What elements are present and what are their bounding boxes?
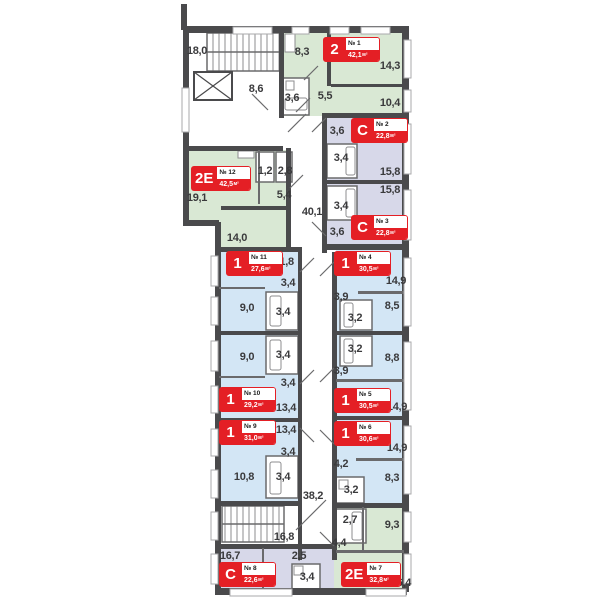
- room-area-label: 2,7: [343, 514, 357, 526]
- apartment-type-label: 2: [323, 37, 346, 62]
- floor-plan: 8,314,310,45,53,62№ 142,1м²3,63,415,8С№ …: [0, 0, 600, 600]
- room-area-label: 3,6: [330, 226, 344, 238]
- apartment-number: № 9: [242, 421, 275, 432]
- apartment-badge-2[interactable]: С№ 222,8м²: [351, 118, 408, 143]
- apartment-badge-4[interactable]: 1№ 430,5м²: [334, 251, 391, 276]
- apartment-badge-info: № 142,1м²: [346, 37, 380, 62]
- apartment-badge-10[interactable]: 1№ 1029,2м²: [219, 387, 276, 412]
- room-area-label: 3,4: [281, 277, 295, 289]
- room-area-label: 3,4: [276, 471, 290, 483]
- apartment-area: 30,5м²: [357, 263, 390, 275]
- apartment-type-label: 1: [334, 388, 357, 413]
- apartment-badge-info: № 1242,5м²: [217, 166, 251, 191]
- area-unit: м²: [390, 133, 395, 139]
- apartment-number: № 7: [367, 563, 400, 574]
- apartment-badge-info: № 630,6м²: [357, 421, 391, 446]
- apartment-type-label: С: [219, 562, 242, 587]
- apartment-number: № 10: [242, 388, 275, 399]
- apartment-type-label: С: [351, 118, 374, 143]
- apartment-badge-info: № 222,8м²: [374, 118, 408, 143]
- room-area-label: 1,2: [258, 165, 272, 177]
- room-area-label: 3,4: [300, 571, 314, 583]
- room-area-label: 2,8: [278, 165, 292, 177]
- apartment-badge-9[interactable]: 1№ 931,0м²: [219, 420, 276, 445]
- room-area-label: 3,2: [344, 484, 358, 496]
- area-unit: м²: [258, 435, 263, 441]
- apartment-type-label: 1: [226, 251, 249, 276]
- apartment-badge-7[interactable]: 2Е№ 732,8м²: [341, 562, 401, 587]
- apartment-type-label: 1: [334, 421, 357, 446]
- apartment-number: № 8: [242, 563, 275, 574]
- room-area-label: 13,4: [276, 424, 296, 436]
- area-unit: м²: [373, 403, 378, 409]
- room-area-label: 14,3: [380, 60, 400, 72]
- apartment-area: 22,6м²: [242, 574, 275, 586]
- room-area-label: 5,5: [318, 90, 332, 102]
- area-unit: м²: [258, 402, 263, 408]
- apartment-type-label: 1: [219, 420, 242, 445]
- apartment-badge-info: № 1127,6м²: [249, 251, 283, 276]
- room-area-label: 8,3: [385, 472, 399, 484]
- apartment-badge-3[interactable]: С№ 322,8м²: [351, 215, 408, 240]
- common-area-label-corridor-lower: 38,2: [303, 490, 323, 502]
- apartment-number: № 11: [249, 252, 282, 263]
- room-area-label: 2,5: [292, 550, 306, 562]
- common-area-label-stairs-bottom: 16,8: [274, 531, 294, 543]
- room-area-label: 16,7: [220, 550, 240, 562]
- room-area-label: 10,8: [234, 471, 254, 483]
- apartment-type-label: С: [351, 215, 374, 240]
- room-area-label: 9,3: [385, 519, 399, 531]
- room-area-label: 3,2: [348, 312, 362, 324]
- room-area-label: 8,8: [385, 352, 399, 364]
- room-area-label: 3,4: [334, 152, 348, 164]
- area-unit: м²: [383, 577, 388, 583]
- room-area-label: 14,9: [386, 275, 406, 287]
- room-area-label: 9,0: [240, 351, 254, 363]
- apartment-number: № 2: [374, 119, 407, 130]
- room-area-label: 3,4: [281, 446, 295, 458]
- apartment-area: 30,6м²: [357, 433, 390, 445]
- room-area-label: 3,4: [281, 377, 295, 389]
- apartment-badge-info: № 732,8м²: [367, 562, 401, 587]
- apartment-badge-11[interactable]: 1№ 1127,6м²: [226, 251, 283, 276]
- apartment-number: № 4: [357, 252, 390, 263]
- apartment-area: 32,8м²: [367, 574, 400, 586]
- common-area-label-entrance-lobby: 8,6: [249, 83, 263, 95]
- apartment-type-label: 2Е: [191, 166, 217, 191]
- area-unit: м²: [390, 230, 395, 236]
- apartment-badge-info: № 530,5м²: [357, 388, 391, 413]
- apartment-type-label: 1: [334, 251, 357, 276]
- apartment-badge-8[interactable]: С№ 822,6м²: [219, 562, 276, 587]
- room-area-label: 3,2: [348, 343, 362, 355]
- apartment-number: № 3: [374, 216, 407, 227]
- common-area-label-stairs-top: 18,0: [187, 45, 207, 57]
- apartment-area: 29,2м²: [242, 399, 275, 411]
- room-area-label: 8,3: [295, 46, 309, 58]
- room-area-label: 8,5: [385, 300, 399, 312]
- room-area-label: 4,4: [332, 537, 346, 549]
- apartment-number: № 5: [357, 389, 390, 400]
- apartment-area: 22,8м²: [374, 130, 407, 142]
- apartment-badge-1[interactable]: 2№ 142,1м²: [323, 37, 380, 62]
- apartment-type-label: 2Е: [341, 562, 367, 587]
- common-area-label-corridor-upper: 40,1: [302, 206, 322, 218]
- area-unit: м²: [233, 181, 238, 187]
- apartment-badge-info: № 1029,2м²: [242, 387, 276, 412]
- room-area-label: 9,0: [240, 302, 254, 314]
- labels-layer: 8,314,310,45,53,62№ 142,1м²3,63,415,8С№ …: [0, 0, 600, 600]
- apartment-area: 30,5м²: [357, 400, 390, 412]
- room-area-label: 15,8: [380, 166, 400, 178]
- area-unit: м²: [258, 577, 263, 583]
- apartment-number: № 1: [346, 38, 379, 49]
- apartment-area: 42,5м²: [217, 178, 250, 190]
- apartment-badge-5[interactable]: 1№ 530,5м²: [334, 388, 391, 413]
- apartment-badge-info: № 430,5м²: [357, 251, 391, 276]
- room-area-label: 15,8: [380, 184, 400, 196]
- apartment-type-label: 1: [219, 387, 242, 412]
- apartment-badge-6[interactable]: 1№ 630,6м²: [334, 421, 391, 446]
- apartment-area: 31,0м²: [242, 432, 275, 444]
- apartment-number: № 12: [217, 167, 250, 178]
- room-area-label: 3,6: [330, 125, 344, 137]
- room-area-label: 5,4: [277, 189, 291, 201]
- room-area-label: 3,9: [334, 291, 348, 303]
- room-area-label: 3,6: [285, 92, 299, 104]
- room-area-label: 10,4: [380, 97, 400, 109]
- room-area-label: 19,1: [187, 192, 207, 204]
- apartment-badge-12[interactable]: 2Е№ 1242,5м²: [191, 166, 251, 191]
- room-area-label: 13,4: [276, 402, 296, 414]
- apartment-area: 27,6м²: [249, 263, 282, 275]
- apartment-number: № 6: [357, 422, 390, 433]
- room-area-label: 3,4: [276, 349, 290, 361]
- room-area-label: 3,4: [276, 306, 290, 318]
- area-unit: м²: [362, 52, 367, 58]
- area-unit: м²: [373, 436, 378, 442]
- apartment-badge-info: № 322,8м²: [374, 215, 408, 240]
- area-unit: м²: [373, 266, 378, 272]
- apartment-badge-info: № 822,6м²: [242, 562, 276, 587]
- room-area-label: 14,0: [227, 232, 247, 244]
- apartment-area: 42,1м²: [346, 49, 379, 61]
- room-area-label: 3,4: [334, 200, 348, 212]
- room-area-label: 3,9: [334, 365, 348, 377]
- apartment-badge-info: № 931,0м²: [242, 420, 276, 445]
- apartment-area: 22,8м²: [374, 227, 407, 239]
- area-unit: м²: [265, 266, 270, 272]
- room-area-label: 4,2: [334, 458, 348, 470]
